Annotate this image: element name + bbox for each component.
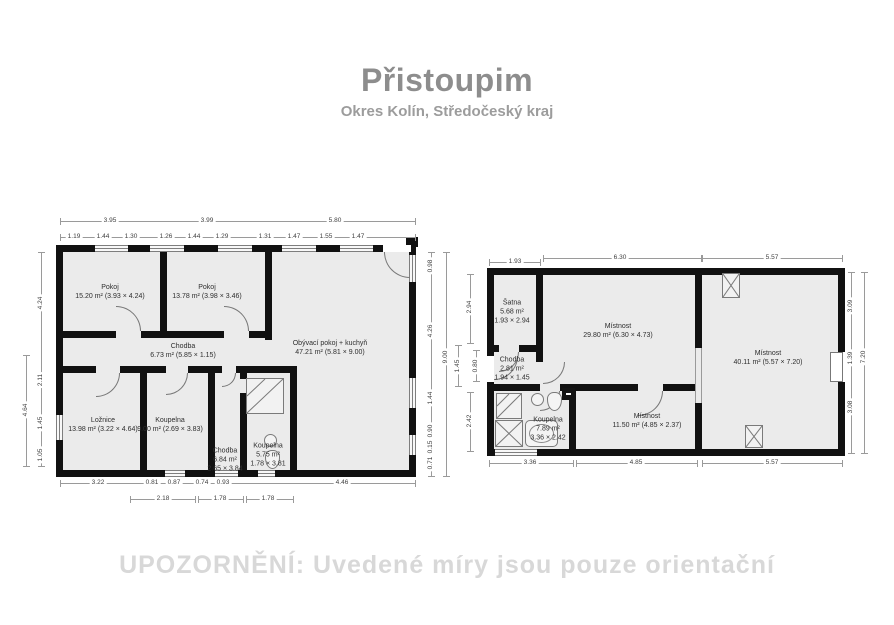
wall [487,268,845,275]
room-detail: 13.98 m² (3.22 × 4.64) [68,425,137,434]
shower-icon [246,378,284,414]
dimension-label: 3.99 [199,217,216,226]
dimension-label: 0.74 [194,479,211,488]
dimension-label: 0.90 [427,423,436,440]
window [282,245,316,252]
room-name: Chodba [207,446,242,455]
dimension-line [60,483,416,484]
wall-opening [695,348,702,403]
room-size: 2.65 × 3.84 [207,465,242,474]
room-size: 1.94 × 1.45 [494,374,529,383]
room-label-chodba: Chodba 2.81 m² 1.94 × 1.45 [494,355,529,382]
wall [120,366,166,373]
dimension-label: 1.05 [37,447,46,464]
dimension-label: 1.45 [454,358,463,375]
wall [249,331,265,338]
room-label-mistnost-3: Místnost 11.50 m² (4.85 × 2.37) [613,412,682,430]
window [409,378,416,408]
dimension-label: 3.08 [847,399,856,416]
room-name: Místnost [583,322,652,331]
wall [63,331,116,338]
dimension-line [41,252,42,467]
dimension-label: 1.44 [95,233,112,242]
roof-window-icon [722,273,740,298]
room-label-satna: Šatna 5.68 m² 1.93 × 2.94 [494,298,529,325]
window [95,245,128,252]
wall [236,366,297,373]
room-detail: 13.78 m² (3.98 × 3.46) [172,292,241,301]
dimension-label: 1.47 [350,233,367,242]
room-label-koupelna: Koupelna 7.89 m² 3.36 × 2.42 [530,415,565,442]
dimension-label: 1.44 [427,390,436,407]
room-label-chodba-mala: Chodba 6.84 m² 2.65 × 3.84 [207,446,242,473]
wall [494,345,499,352]
page-subtitle: Okres Kolín, Středočeský kraj [0,103,894,120]
wall [160,252,167,331]
page-title: Přistoupim [0,62,894,99]
door-leaf [830,352,843,382]
wall [519,345,543,352]
wall [63,366,96,373]
room-name: Obývací pokoj + kuchyň [293,339,368,348]
window [258,470,275,477]
room-label-pokoj1: Pokoj 15.20 m² (3.93 × 4.24) [75,283,144,301]
roof-window-icon [745,425,763,448]
dimension-label: 3.22 [90,479,107,488]
dimension-label: 0.98 [427,258,436,275]
wall [265,252,272,340]
floorplan-right: Šatna 5.68 m² 1.93 × 2.94 Chodba 2.81 m²… [487,268,845,456]
dimension-label: 1.30 [123,233,140,242]
wall [663,384,695,391]
wall [141,331,224,338]
dimension-label: 4.85 [628,459,645,468]
room-name: Koupelna [137,416,203,425]
dimension-label: 4.26 [427,323,436,340]
stove-icon [562,388,575,400]
wall [695,403,702,449]
wall [576,384,638,391]
floorplan-left: Pokoj 15.20 m² (3.93 × 4.24) Pokoj 13.78… [56,245,416,477]
dimension-label: 3.95 [102,217,119,226]
room-label-loznice: Ložnice 13.98 m² (3.22 × 4.64) [68,416,137,434]
room-label-pokoj2: Pokoj 13.78 m² (3.98 × 3.46) [172,283,241,301]
room-size: 3.36 × 2.42 [530,434,565,443]
dimension-label: 5.57 [764,459,781,468]
dimension-label: 1.78 [212,495,229,504]
dimension-label: 0.71 [427,455,436,472]
window [150,245,184,252]
window [409,255,416,282]
dimension-label: 2.18 [155,495,172,504]
dimension-label: 1.45 [37,415,46,432]
room-name: Místnost [734,349,803,358]
sink-icon [531,393,544,406]
dimension-label: 1.93 [507,258,524,267]
wall [56,245,63,477]
dimension-label: 3.09 [847,298,856,315]
dimension-label: 3.36 [522,459,539,468]
dimension-label: 0.80 [472,358,481,375]
door-opening [487,356,494,382]
wall [695,275,702,348]
dimension-label: 6.30 [612,254,629,263]
room-detail: 15.20 m² (3.93 × 4.24) [75,292,144,301]
room-label-chodba: Chodba 6.73 m² (5.85 × 1.15) [150,342,216,360]
shower-icon [496,393,522,419]
dimension-label: 7.20 [860,349,869,366]
room-name: Koupelna [530,415,565,424]
wall [487,449,845,456]
dimension-label: 4.46 [334,479,351,488]
wall [536,352,543,362]
room-label-koupelna-mala: Koupelna 5.75 m² 1.78 × 3.81 [250,441,285,468]
room-name: Ložnice [68,416,137,425]
wall [188,366,222,373]
window [409,435,416,455]
door-opening [383,245,411,252]
dimension-label: 5.57 [764,254,781,263]
dimension-label: 1.44 [186,233,203,242]
dimension-label: 1.55 [318,233,335,242]
dimension-label: 1.78 [260,495,277,504]
room-area: 5.75 m² [250,450,285,459]
dimension-label: 4.24 [37,295,46,312]
room-name: Místnost [613,412,682,421]
dimension-label: 2.42 [466,413,475,430]
room-detail: 40.11 m² (5.57 × 7.20) [734,358,803,367]
dimension-label: 0.87 [166,479,183,488]
room-name: Šatna [494,298,529,307]
dimension-label: 5.80 [327,217,344,226]
room-label-mistnost-1: Místnost 29.80 m² (6.30 × 4.73) [583,322,652,340]
dimension-label: 9.00 [442,349,451,366]
room-name: Chodba [494,355,529,364]
room-area: 7.89 m² [530,424,565,433]
room-area: 2.81 m² [494,364,529,373]
dimension-label: 2.94 [466,299,475,316]
room-label-koupelna-velka: Koupelna 9.00 m² (2.69 × 3.83) [137,416,203,434]
room-area: 6.84 m² [207,455,242,464]
window [495,449,537,456]
dimension-label: 1.47 [286,233,303,242]
room-detail: 9.00 m² (2.69 × 3.83) [137,425,203,434]
room-area: 5.68 m² [494,307,529,316]
dimension-label: 1.39 [847,350,856,367]
room-detail: 6.73 m² (5.85 × 1.15) [150,351,216,360]
dimension-label: 1.31 [257,233,274,242]
dimension-label: 0.93 [215,479,232,488]
room-name: Koupelna [250,441,285,450]
disclaimer-text: UPOZORNĚNÍ: Uvedené míry jsou pouze orie… [0,551,894,580]
room-size: 1.93 × 2.94 [494,317,529,326]
window [218,245,252,252]
dimension-label: 4.64 [22,402,31,419]
room-detail: 47.21 m² (5.81 × 9.00) [293,348,368,357]
room-label-mistnost-2: Místnost 40.11 m² (5.57 × 7.20) [734,349,803,367]
window [56,415,63,440]
dimension-label: 0.81 [144,479,161,488]
window [340,245,373,252]
wall [536,275,543,345]
room-size: 1.78 × 3.81 [250,460,285,469]
room-detail: 29.80 m² (6.30 × 4.73) [583,331,652,340]
dimension-label: 1.29 [214,233,231,242]
dimension-label: 2.11 [37,372,46,388]
room-label-obyvaci-pokoj: Obývací pokoj + kuchyň 47.21 m² (5.81 × … [293,339,368,357]
shower-tray-icon [495,420,523,447]
dimension-label: 1.19 [66,233,83,242]
dimension-label: 1.26 [158,233,175,242]
room-detail: 11.50 m² (4.85 × 2.37) [613,421,682,430]
window [165,470,185,477]
room-name: Chodba [150,342,216,351]
wall [290,373,297,470]
wall [494,384,540,391]
room-name: Pokoj [172,283,241,292]
room-name: Pokoj [75,283,144,292]
dimension-label: 0.15 [427,439,436,456]
